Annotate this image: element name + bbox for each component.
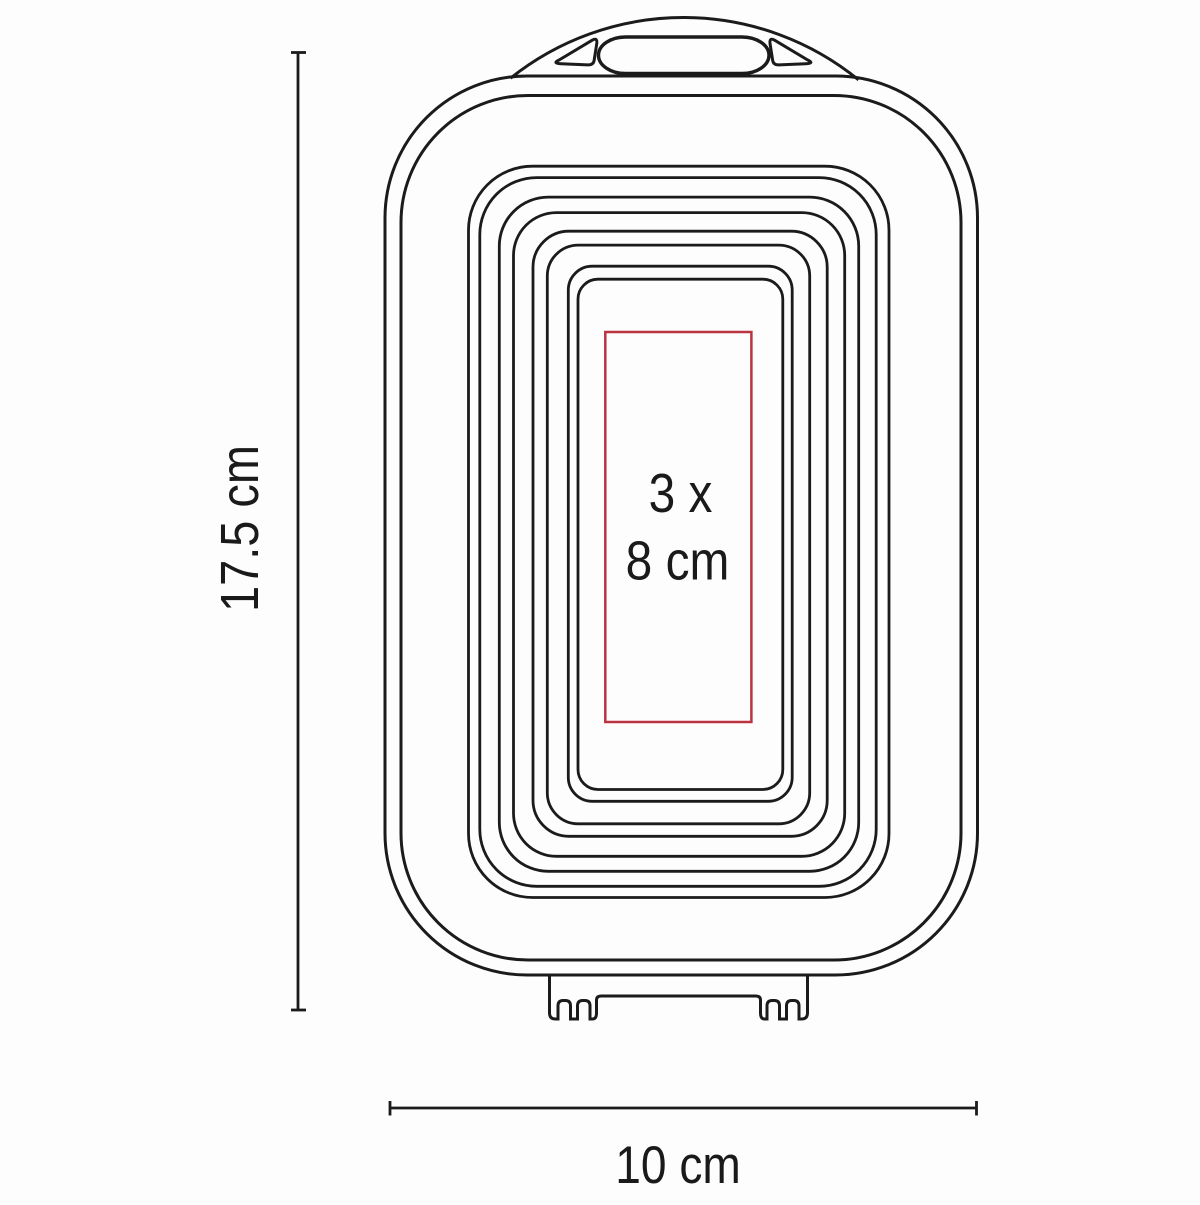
svg-text:3 x: 3 x: [649, 462, 713, 524]
svg-text:10 cm: 10 cm: [615, 1135, 741, 1195]
svg-text:8 cm: 8 cm: [626, 529, 730, 591]
svg-text:17.5 cm: 17.5 cm: [209, 445, 270, 612]
